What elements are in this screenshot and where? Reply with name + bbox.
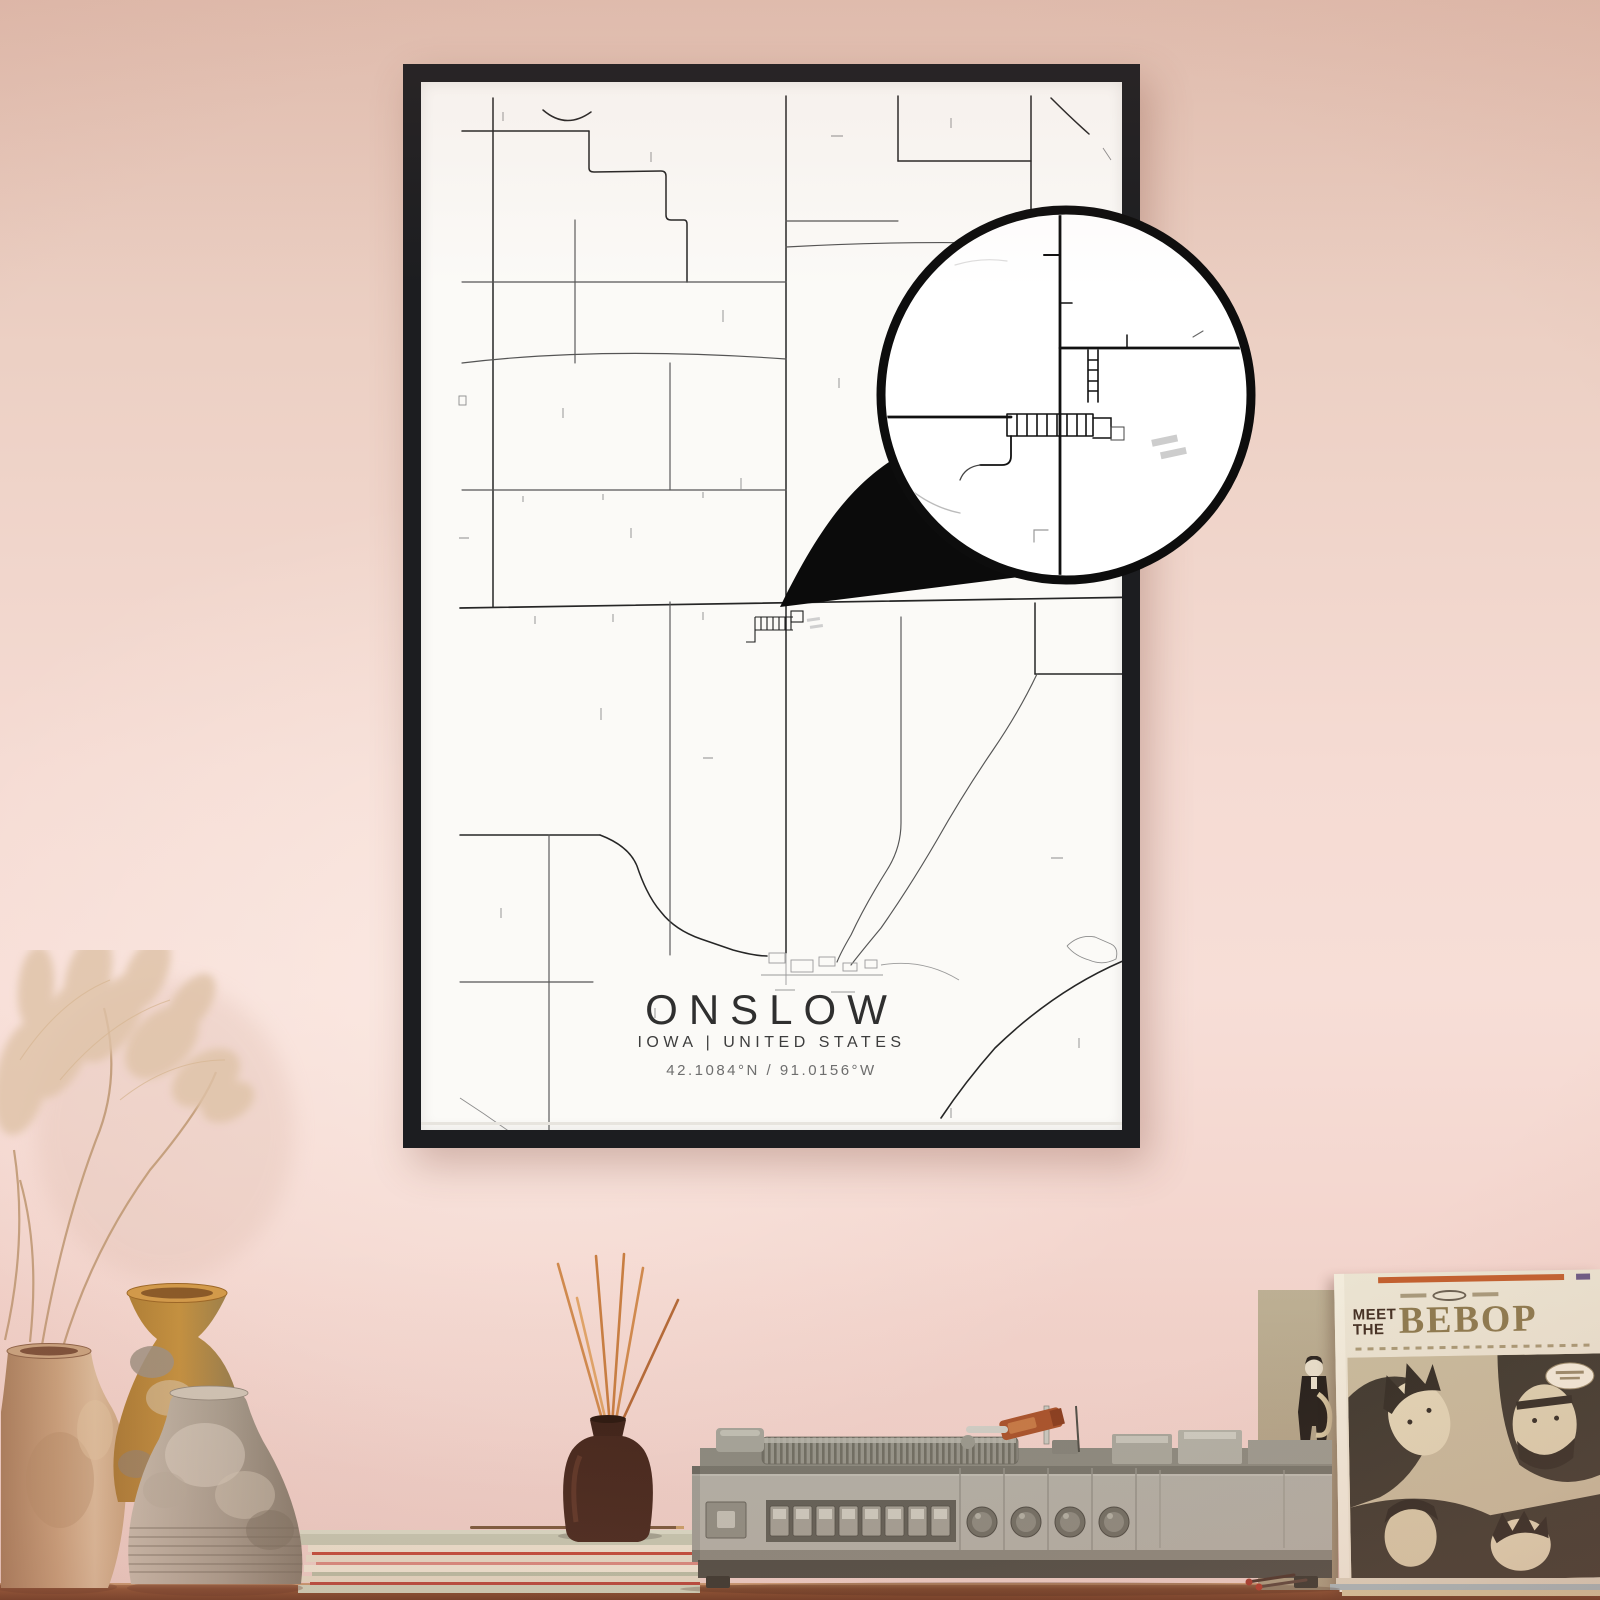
sleeve-the-label: THE [1353, 1322, 1397, 1338]
tan-vase [1, 1344, 126, 1589]
poster-coordinates: 42.1084°N / 91.0156°W [421, 1062, 1122, 1079]
record-player [680, 1395, 1340, 1600]
player-top-trim [692, 1466, 1332, 1474]
player-foot [706, 1576, 730, 1588]
power-button [706, 1502, 746, 1538]
player-shadow [680, 1582, 1340, 1596]
sleeve-meet-the-label: MEET THE [1353, 1307, 1397, 1338]
sleeve-orange-strip [1378, 1274, 1564, 1283]
magnifier-circle [881, 210, 1251, 580]
diffuser-bottle [563, 1415, 653, 1542]
sleeve-title: BEBOP [1398, 1296, 1538, 1342]
sleeve-art-canvas [1347, 1353, 1600, 1581]
turntable-platter [762, 1437, 1018, 1464]
sleeve-purple-mark [1576, 1274, 1590, 1280]
art-face-jet [1512, 1384, 1577, 1470]
magazine-under-sleeve [1342, 1590, 1600, 1596]
poster-title: ONSLOW [421, 986, 1122, 1034]
art-badge [1546, 1362, 1594, 1389]
reed-sticks [558, 1254, 678, 1428]
meet-the-bebop-sleeve: MEET THE BEBOP [1334, 1269, 1600, 1592]
room-scene: ONSLOW IOWA | UNITED STATES 42.1084°N / … [0, 0, 1600, 1600]
face-highlight-line [692, 1474, 1332, 1476]
deck-left-block [716, 1428, 764, 1452]
sleeve-artwork [1347, 1353, 1600, 1581]
label-text-bar [1472, 1292, 1498, 1296]
poster-subtitle: IOWA | UNITED STATES [421, 1034, 1122, 1052]
player-left-shade [692, 1466, 700, 1562]
magnifier-detail [755, 185, 1275, 635]
sleeve-caption-line [1355, 1343, 1593, 1350]
deck-right-blocks [1112, 1430, 1332, 1464]
player-base [698, 1560, 1332, 1578]
poster-matting-line [421, 1122, 1122, 1125]
label-text-bar [1400, 1293, 1426, 1297]
ceramic-vases [0, 1270, 320, 1600]
